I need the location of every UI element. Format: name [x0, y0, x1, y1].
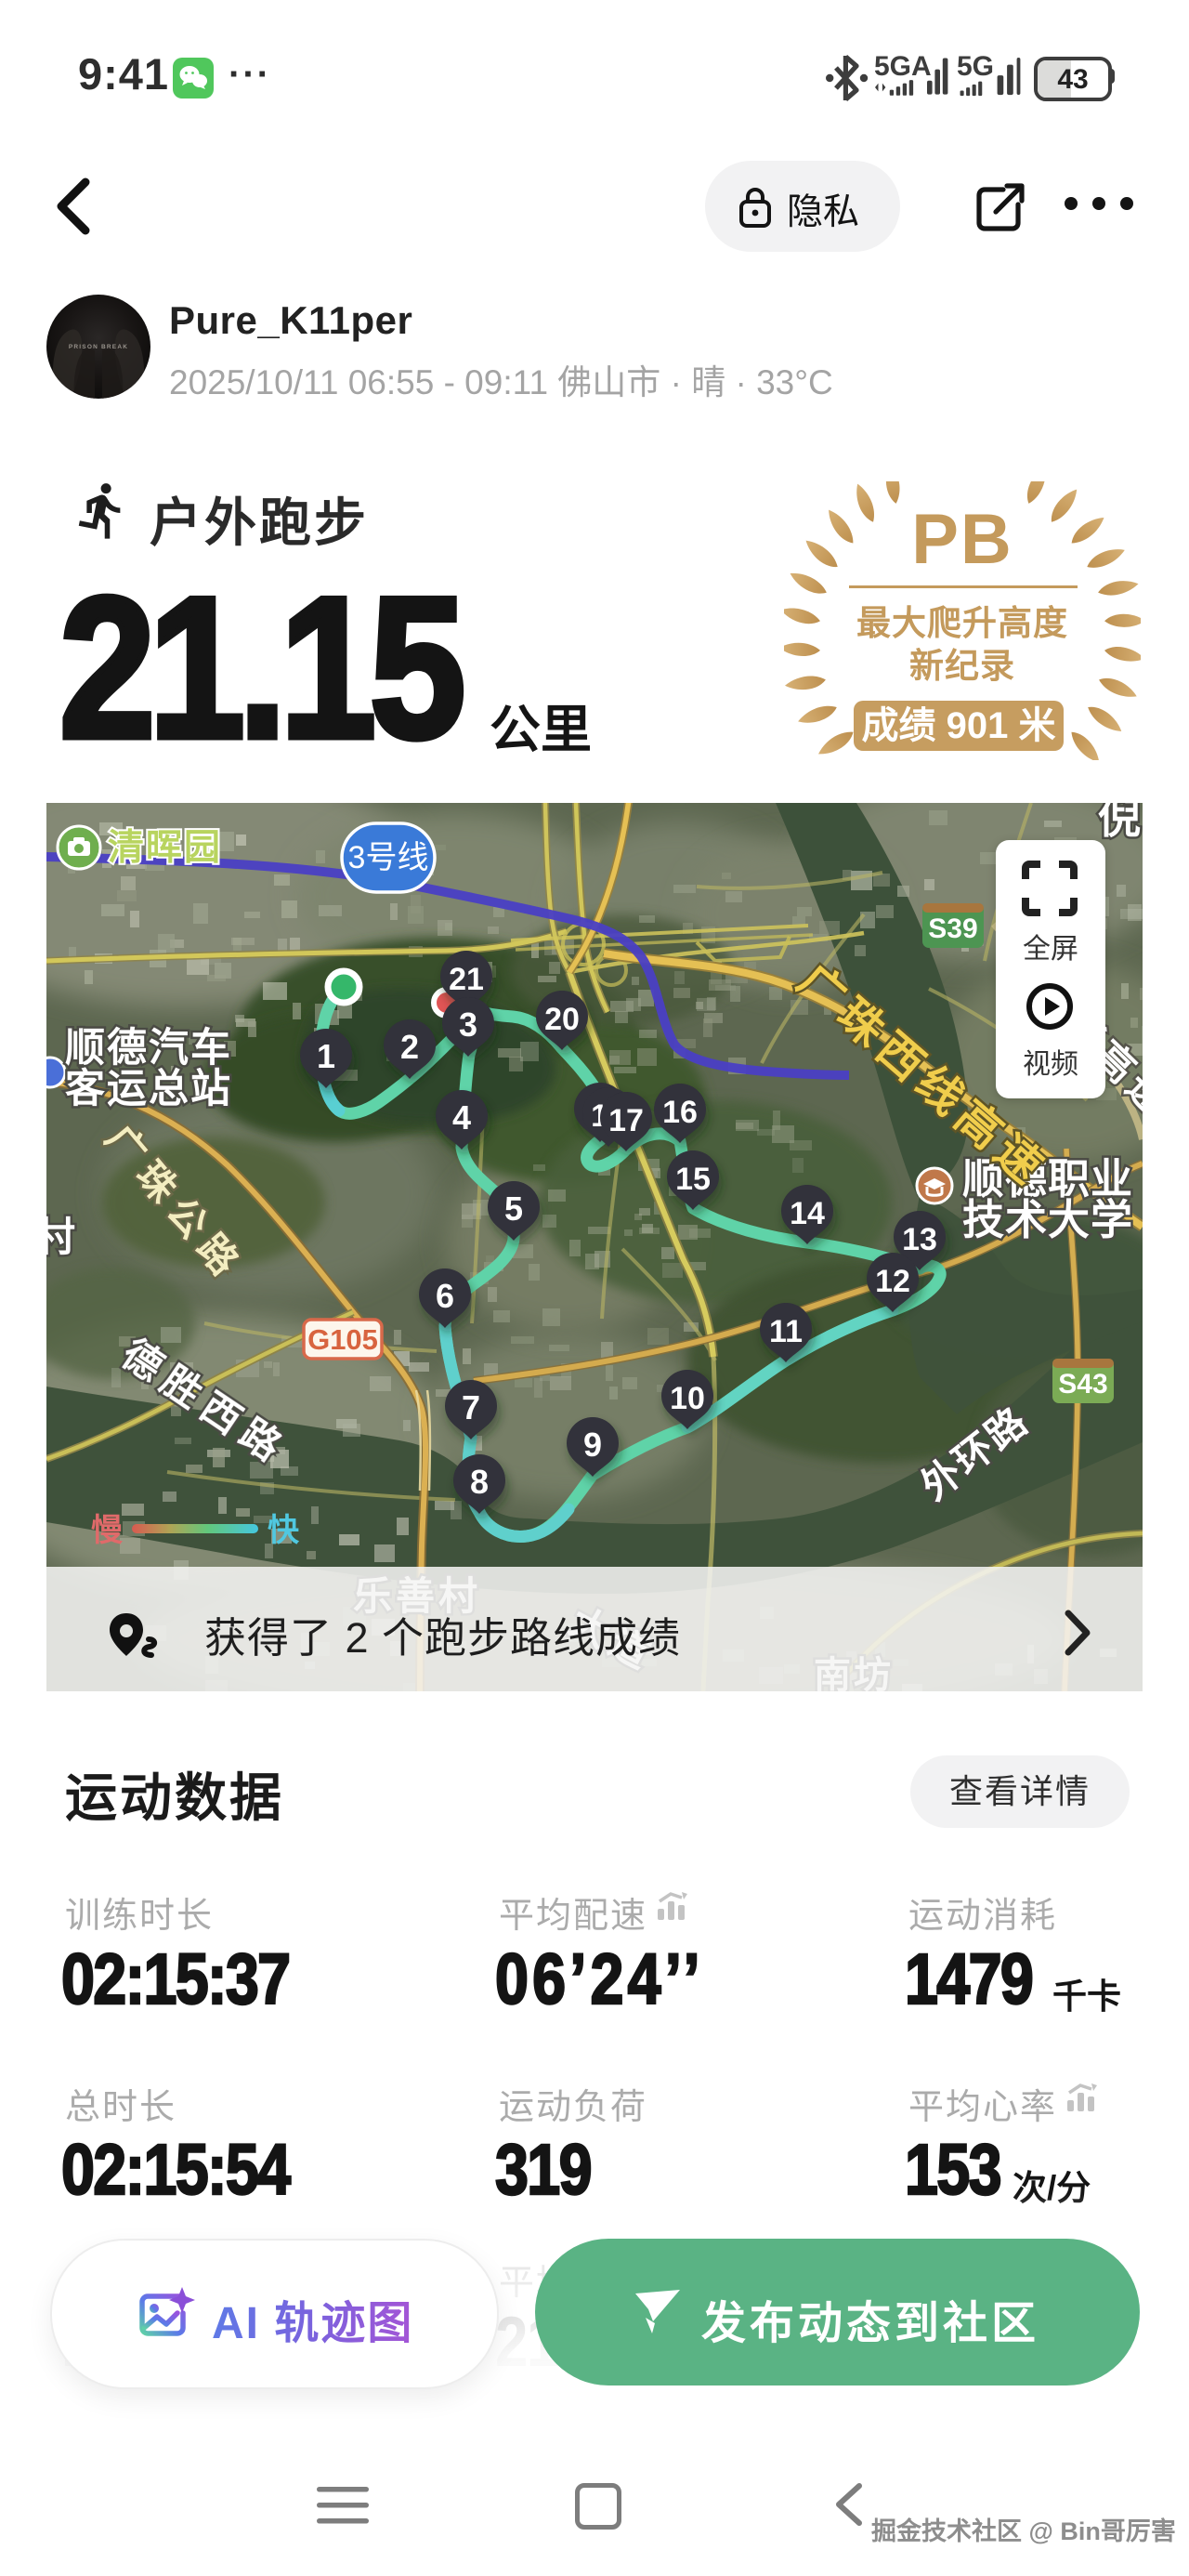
svg-text:客运总站: 客运总站 — [65, 1067, 232, 1111]
svg-text:4: 4 — [452, 1098, 471, 1137]
svg-text:成绩 901 米: 成绩 901 米 — [862, 705, 1056, 746]
svg-text:2: 2 — [400, 1028, 419, 1066]
svg-text:15: 15 — [675, 1162, 711, 1197]
svg-text:21: 21 — [449, 962, 484, 997]
svg-text:9: 9 — [583, 1426, 602, 1464]
svg-text:12: 12 — [875, 1264, 910, 1299]
svg-text:3号线: 3号线 — [348, 840, 429, 875]
svg-text:技术大学: 技术大学 — [962, 1196, 1133, 1243]
svg-text:村: 村 — [46, 1216, 75, 1260]
svg-text:慢: 慢 — [91, 1513, 124, 1548]
svg-text:G105: G105 — [307, 1323, 378, 1356]
svg-text:5: 5 — [504, 1189, 523, 1228]
svg-text:8: 8 — [470, 1463, 489, 1501]
svg-text:6: 6 — [436, 1277, 454, 1315]
svg-text:快: 快 — [268, 1513, 300, 1548]
svg-text:17: 17 — [608, 1103, 644, 1138]
svg-text:20: 20 — [544, 1002, 580, 1037]
svg-text:16: 16 — [662, 1095, 698, 1130]
svg-text:3: 3 — [459, 1005, 477, 1044]
svg-text:1: 1 — [317, 1037, 335, 1075]
svg-text:顺德汽车: 顺德汽车 — [65, 1026, 232, 1071]
svg-text:新纪录: 新纪录 — [909, 647, 1015, 685]
svg-text:PB: PB — [911, 500, 1013, 579]
svg-text:S43: S43 — [1058, 1369, 1107, 1400]
svg-text:13: 13 — [902, 1222, 937, 1257]
svg-text:倪: 倪 — [1098, 803, 1141, 842]
svg-text:14: 14 — [790, 1196, 825, 1231]
svg-text:10: 10 — [670, 1381, 705, 1416]
svg-text:清晖园: 清晖园 — [108, 828, 222, 868]
svg-text:S39: S39 — [928, 913, 977, 944]
svg-text:最大爬升高度: 最大爬升高度 — [856, 604, 1068, 642]
svg-text:11: 11 — [769, 1314, 803, 1349]
svg-text:7: 7 — [462, 1388, 480, 1426]
svg-text:PRISON BREAK: PRISON BREAK — [69, 344, 128, 350]
